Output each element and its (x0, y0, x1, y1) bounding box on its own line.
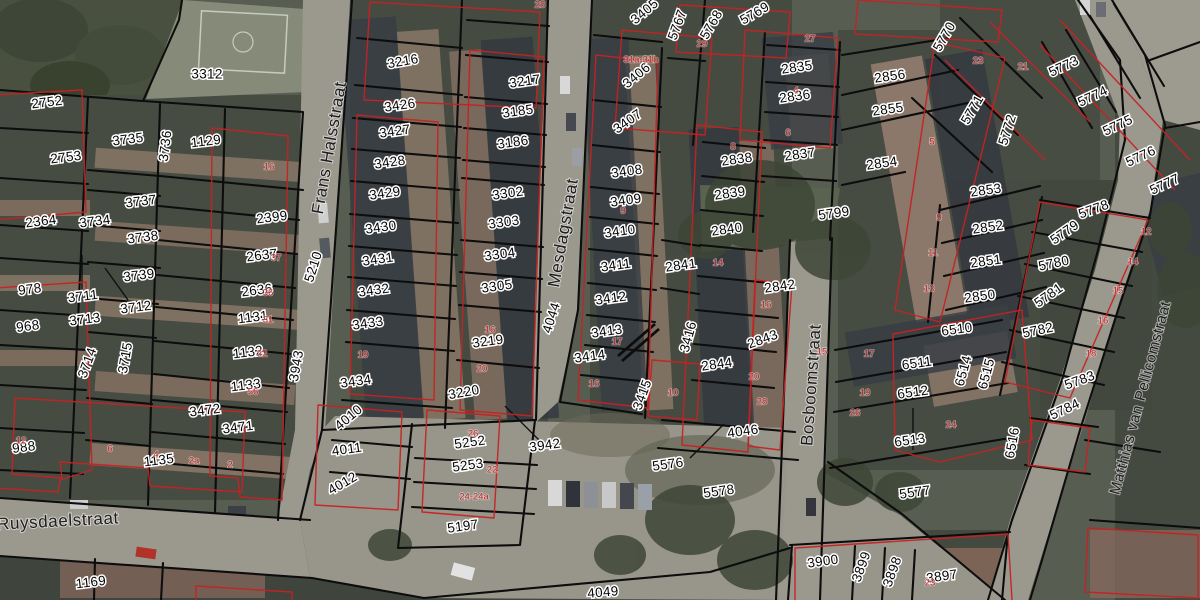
house-number-17: 17 (864, 349, 875, 360)
house-number-16: 16 (589, 379, 600, 390)
house-number-23: 23 (973, 56, 984, 67)
house-number-8: 8 (730, 142, 735, 153)
parcel-label-4049: 4049 (587, 583, 619, 600)
house-number-56: 56 (248, 387, 259, 398)
house-number-9: 9 (936, 213, 941, 224)
parcel-label-968: 968 (15, 317, 40, 335)
house-number-31a-31b: 31a-31b (624, 55, 659, 66)
map-canvas[interactable]: Frans HalsstraatMesdagstraatBosboomstraa… (0, 0, 1200, 600)
house-number-12: 12 (1141, 227, 1152, 238)
house-number-6: 6 (785, 128, 790, 139)
house-number-26: 26 (850, 408, 861, 419)
house-number-2a: 2a (189, 456, 200, 467)
house-number-26: 26 (468, 429, 479, 440)
house-number-20: 20 (749, 372, 760, 383)
house-number-28: 28 (757, 397, 768, 408)
house-number-24-24a: 24-24a (459, 492, 489, 503)
house-number-21: 21 (1018, 62, 1029, 73)
house-number-19: 19 (358, 350, 369, 361)
house-number-14: 14 (1128, 257, 1139, 268)
house-number-4: 4 (793, 86, 798, 97)
house-number-24: 24 (946, 420, 957, 431)
house-number-10: 10 (668, 388, 679, 399)
house-number-16: 16 (264, 162, 275, 173)
house-number-37: 37 (271, 253, 282, 264)
house-number-2: 2 (227, 460, 232, 471)
house-number-16: 16 (1098, 316, 1109, 327)
house-number-4: 4 (153, 450, 158, 461)
house-number-12: 12 (16, 436, 27, 447)
house-number-11: 11 (928, 248, 938, 259)
house-number-15: 15 (1113, 286, 1124, 297)
house-number-36: 36 (263, 288, 274, 299)
house-number-14: 14 (713, 258, 724, 269)
parcel-label-978: 978 (17, 280, 42, 298)
house-number-13: 13 (924, 284, 935, 295)
house-number-18: 18 (1086, 349, 1097, 360)
house-number-28: 28 (535, 0, 546, 11)
house-number-32: 32 (257, 349, 268, 360)
house-number-16: 16 (761, 300, 772, 311)
parcel-label-3312: 3312 (191, 67, 222, 82)
house-number-5: 5 (929, 137, 934, 148)
house-number-6: 6 (107, 444, 112, 455)
house-number-29: 29 (697, 39, 708, 50)
house-number-22: 22 (487, 465, 498, 476)
house-number-17: 17 (612, 337, 623, 348)
house-number-23: 23 (925, 578, 936, 589)
house-number-27: 27 (805, 34, 816, 45)
house-number-19: 19 (860, 388, 871, 399)
cadastral-map-viewer: Frans HalsstraatMesdagstraatBosboomstraa… (0, 0, 1200, 600)
house-number-16: 16 (485, 325, 496, 336)
house-number-20: 20 (477, 364, 488, 375)
house-number-9: 9 (620, 206, 625, 217)
house-number-15: 15 (817, 347, 828, 358)
house-number-31: 31 (263, 315, 274, 326)
